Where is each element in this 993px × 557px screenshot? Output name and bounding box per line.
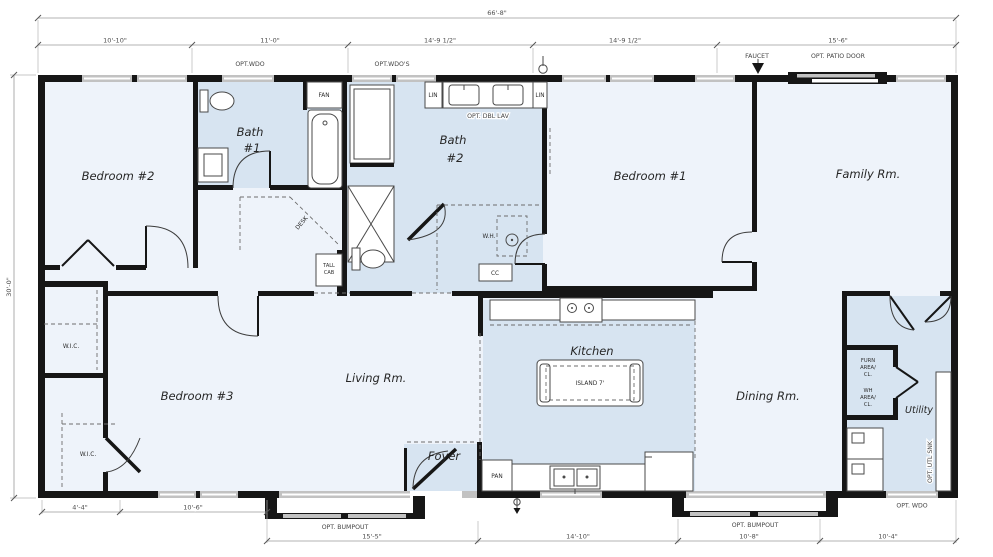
window-bath2-b <box>396 75 436 82</box>
room-label-dining: Dining Rm. <box>736 389 800 403</box>
toilet2-tank-icon <box>352 248 360 270</box>
room-label-bedroom2: Bedroom #2 <box>82 169 155 183</box>
double-lav-counter <box>443 82 533 108</box>
fan-label: FAN <box>318 93 329 99</box>
room-label-bedroom1: Bedroom #1 <box>614 169 687 183</box>
room-label-kitchen: Kitchen <box>570 344 613 358</box>
opt-patio-door-label: OPT. PATIO DOOR <box>811 53 866 60</box>
dim-bottom-1: 15'-5" <box>362 533 382 541</box>
bumpout-left <box>265 496 425 519</box>
dim-top-3: 14'-9 1/2" <box>424 37 456 45</box>
dimensions-left: 30'-0" <box>5 72 36 501</box>
wh-area-label-line3: CL. <box>864 402 873 408</box>
lin-left-label: LIN <box>428 93 437 99</box>
refrigerator-icon <box>645 452 693 491</box>
room-label-foyer: Foyer <box>428 449 462 463</box>
window-bath1 <box>222 75 274 82</box>
dim-bottom-left-2: 10'-6" <box>183 504 203 512</box>
island-label: ISLAND 7' <box>576 381 605 387</box>
dim-overall-depth: 30'-0" <box>5 277 13 297</box>
water-heater-label: W.H. <box>482 234 495 240</box>
room-label-bedroom3: Bedroom #3 <box>161 389 234 403</box>
room-label-bath2-line1: Bath <box>440 133 467 147</box>
shower-icon <box>350 85 394 163</box>
opt-wdo-top-label: OPT.WDO <box>235 61 264 68</box>
room-label-living: Living Rm. <box>346 371 407 385</box>
opt-bumpout-left-label: OPT. BUMPOUT <box>322 524 369 531</box>
dim-bottom-2: 14'-10" <box>566 533 590 541</box>
opt-wdo-bottom-label: OPT. WDO <box>896 503 927 510</box>
dimensions-top: 66'-8" 10'-10" 11'-0" 14'-9 1/2" 14'-9 1… <box>35 9 959 73</box>
dim-top-5: 15'-6" <box>828 37 848 45</box>
dim-top-1: 10'-10" <box>103 37 127 45</box>
window-family <box>695 75 735 82</box>
wh-area-label-line2: AREA/ <box>860 395 876 401</box>
toilet2-icon <box>361 250 385 268</box>
utility-counter <box>936 372 951 491</box>
window-bedroom2-a <box>82 75 132 82</box>
toilet-tank-icon <box>200 90 208 112</box>
gas-line-symbol <box>539 56 547 73</box>
dim-top-2: 11'-0" <box>260 37 280 45</box>
kitchen-counter-bottom <box>512 464 645 491</box>
wh-area-label-line1: WH <box>863 388 872 394</box>
dim-top-4: 14'-9 1/2" <box>609 37 641 45</box>
dim-overall-width: 66'-8" <box>487 9 507 17</box>
opt-utl-snk-label: OPT. UTL SNK <box>927 440 934 483</box>
toilet-icon <box>210 92 234 110</box>
window-bedroom3-b <box>200 491 238 498</box>
faucet-symbol <box>752 58 764 74</box>
room-label-wic-lower: W.I.C. <box>80 452 97 458</box>
window-utility <box>886 491 938 498</box>
bumpout-right <box>672 496 838 517</box>
bathtub-icon <box>308 110 342 188</box>
range-icon <box>560 298 602 322</box>
room-label-bath1-line2: #1 <box>244 141 261 155</box>
vanity-icon <box>198 148 228 182</box>
dim-bottom-left-1: 4'-4" <box>72 504 87 512</box>
tall-cab-label-line2: CAB <box>324 270 335 276</box>
furn-label-line1: FURN <box>861 358 875 364</box>
window-living-bumpout-opening <box>279 491 413 498</box>
dim-bottom-3: 10'-8" <box>739 533 759 541</box>
floor-plan-page: 66'-8" 10'-10" 11'-0" 14'-9 1/2" 14'-9 1… <box>0 0 993 557</box>
opt-wdos-top-label: OPT.WDO'S <box>375 61 410 68</box>
room-label-utility: Utility <box>905 405 933 416</box>
cc-label: CC <box>491 271 499 277</box>
lin-right-label: LIN <box>535 93 544 99</box>
window-bedroom2-b <box>137 75 187 82</box>
tall-cab-label-line1: TALL <box>322 263 335 269</box>
room-label-bath2-line2: #2 <box>447 151 464 165</box>
furn-label-line3: CL. <box>864 372 873 378</box>
window-bedroom1-a <box>562 75 606 82</box>
dim-bottom-4: 10'-4" <box>878 533 898 541</box>
patio-door <box>788 72 887 84</box>
opt-dbl-lav-label: OPT. DBL LAV <box>467 113 509 120</box>
faucet-label: FAUCET <box>745 53 769 60</box>
window-bedroom1-b <box>610 75 654 82</box>
hose-bib-symbol <box>514 498 521 514</box>
window-dining-bumpout-opening <box>686 491 826 498</box>
room-label-wic-upper: W.I.C. <box>63 344 80 350</box>
floor-fills <box>38 75 958 498</box>
window-family-right <box>896 75 946 82</box>
window-kitchen <box>540 491 602 498</box>
opt-bumpout-right-label: OPT. BUMPOUT <box>732 522 779 529</box>
room-label-family: Family Rm. <box>836 167 901 181</box>
window-bath2-a <box>352 75 392 82</box>
window-bedroom3-a <box>158 491 196 498</box>
dimensions-bottom: 4'-4" 10'-6" 15'-5" 14'-10" 10'-8" 10'-4… <box>39 500 959 544</box>
room-label-bath1-line1: Bath <box>237 125 264 139</box>
furn-label-line2: AREA/ <box>860 365 876 371</box>
pantry-label: PAN <box>491 474 502 480</box>
floor-plan-canvas: 66'-8" 10'-10" 11'-0" 14'-9 1/2" 14'-9 1… <box>0 0 993 557</box>
